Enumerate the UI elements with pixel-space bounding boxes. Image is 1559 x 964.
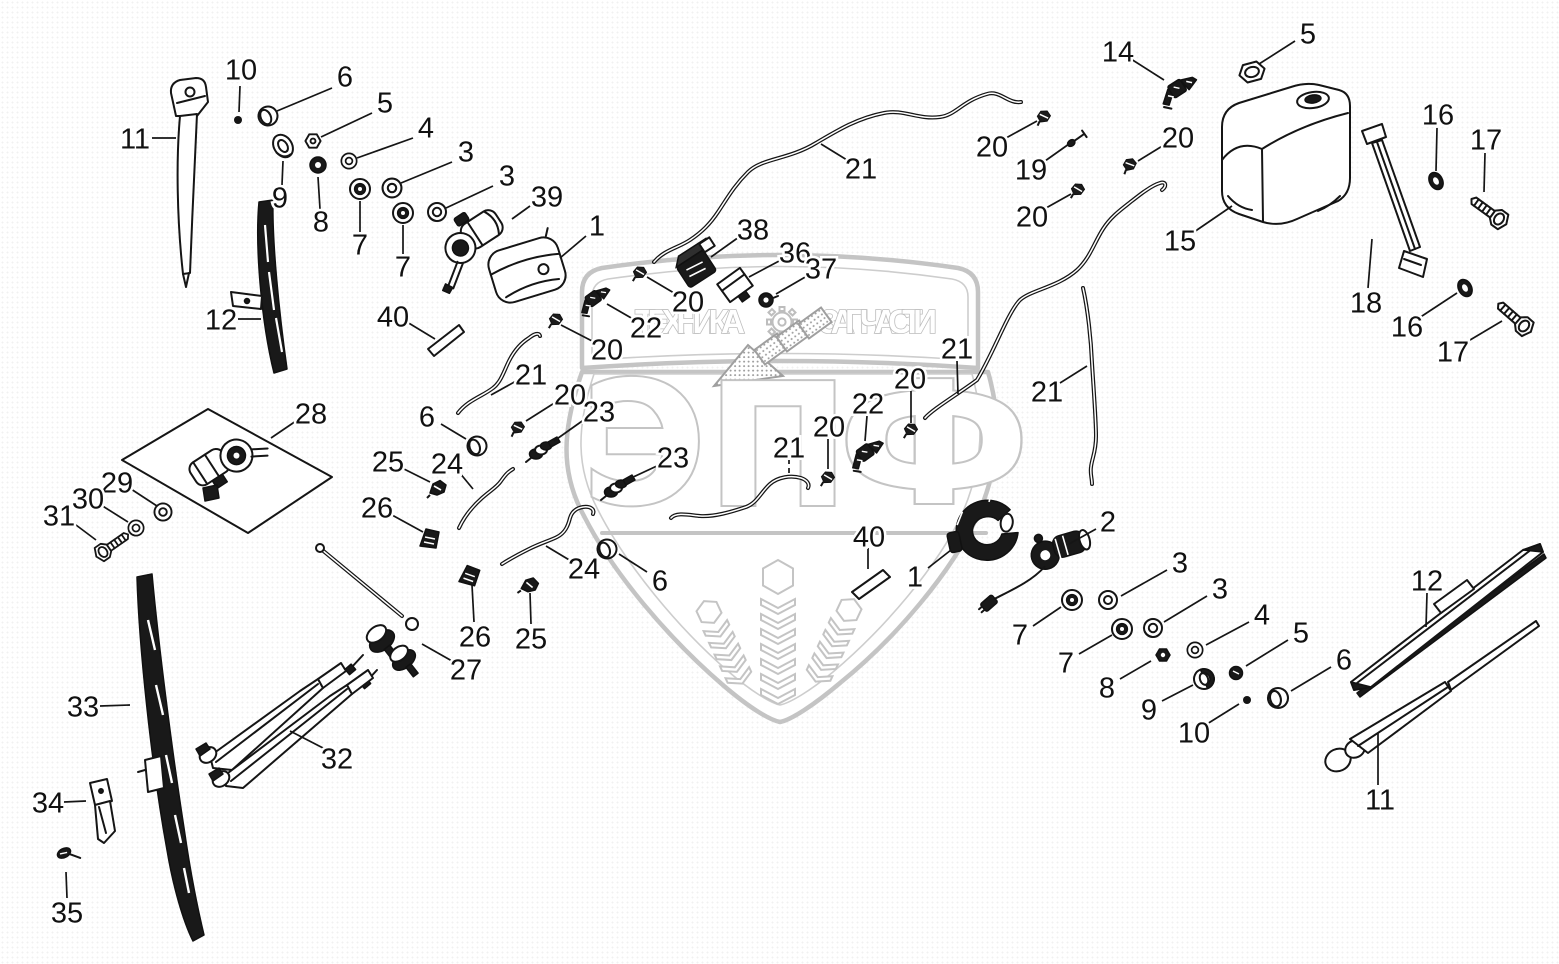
part-3-washer bbox=[383, 179, 402, 198]
callout-label-23: 23 bbox=[583, 397, 615, 429]
callout-label-19: 19 bbox=[1015, 155, 1047, 187]
callout-label-5: 5 bbox=[377, 88, 393, 120]
part-20-clip bbox=[1119, 156, 1138, 174]
callout-label-21: 21 bbox=[773, 433, 805, 465]
part-9-cap bbox=[269, 131, 297, 161]
callout-label-20: 20 bbox=[672, 287, 704, 319]
leader-line-21 bbox=[1060, 366, 1087, 383]
part-20-clip bbox=[1068, 182, 1086, 198]
callout-label-20: 20 bbox=[894, 364, 926, 396]
leader-line-31 bbox=[72, 522, 96, 540]
part-33-wiper-blade-large bbox=[137, 574, 204, 941]
callout-label-8: 8 bbox=[313, 207, 329, 239]
part-16-washer bbox=[1426, 170, 1446, 192]
callout-label-21: 21 bbox=[1031, 377, 1063, 409]
leader-line-3 bbox=[1164, 596, 1207, 622]
callout-label-11: 11 bbox=[1365, 785, 1395, 817]
leader-line-35 bbox=[66, 872, 67, 898]
callout-label-1: 1 bbox=[589, 211, 605, 243]
part-31-bolt bbox=[92, 528, 133, 563]
callout-label-8: 8 bbox=[1099, 673, 1115, 705]
leader-line-20 bbox=[1138, 145, 1164, 161]
part-1-motor-housing bbox=[483, 227, 570, 306]
callout-label-28: 28 bbox=[295, 399, 327, 431]
callout-label-11: 11 bbox=[120, 124, 150, 156]
part-34-adapter bbox=[90, 779, 115, 843]
callout-label-31: 31 bbox=[43, 501, 75, 533]
callout-label-26: 26 bbox=[361, 493, 393, 525]
leader-line-7 bbox=[1033, 607, 1061, 626]
callout-label-16: 16 bbox=[1391, 312, 1423, 344]
leader-line-19 bbox=[1045, 144, 1069, 161]
part-7-washer bbox=[350, 179, 370, 199]
callout-label-9: 9 bbox=[272, 183, 288, 215]
callout-label-22: 22 bbox=[630, 313, 662, 345]
part-5-nut bbox=[305, 134, 320, 147]
callout-label-3: 3 bbox=[1212, 574, 1228, 606]
callout-label-37: 37 bbox=[805, 254, 837, 286]
part-18-bracket bbox=[1362, 124, 1427, 277]
leader-line-8 bbox=[318, 177, 320, 209]
leader-line-6 bbox=[277, 88, 332, 111]
part-8-nut bbox=[310, 157, 326, 173]
part-6-grommet bbox=[255, 103, 280, 128]
callout-label-20: 20 bbox=[591, 335, 623, 367]
callout-label-39: 39 bbox=[531, 182, 563, 214]
leader-line-5 bbox=[1259, 41, 1295, 64]
part-4-washer bbox=[1187, 642, 1202, 657]
leader-line-20 bbox=[1006, 121, 1037, 138]
callout-label-27: 27 bbox=[450, 655, 482, 687]
callout-label-9: 9 bbox=[1141, 695, 1157, 727]
callout-label-18: 18 bbox=[1350, 288, 1382, 320]
callout-label-35: 35 bbox=[51, 898, 83, 930]
leader-line-3 bbox=[1121, 570, 1167, 596]
part-6-grommet bbox=[1266, 686, 1290, 710]
leader-line-20 bbox=[526, 402, 556, 421]
part-27-linkage bbox=[316, 544, 426, 689]
callout-label-30: 30 bbox=[72, 484, 104, 516]
callout-label-40: 40 bbox=[377, 302, 409, 334]
part-29-washer bbox=[154, 503, 171, 520]
callout-label-5: 5 bbox=[1300, 19, 1316, 51]
callout-label-20: 20 bbox=[976, 132, 1008, 164]
callout-label-24: 24 bbox=[568, 554, 600, 586]
callout-label-1: 1 bbox=[907, 562, 923, 594]
leader-line-16 bbox=[1436, 128, 1437, 171]
callout-label-6: 6 bbox=[652, 566, 668, 598]
part-11-wiper-arm bbox=[171, 78, 208, 287]
leader-line-12 bbox=[1426, 593, 1427, 627]
leader-line-5 bbox=[321, 113, 372, 137]
callout-label-34: 34 bbox=[32, 788, 64, 820]
callout-label-4: 4 bbox=[418, 113, 434, 145]
callout-label-33: 33 bbox=[67, 692, 99, 724]
callout-label-7: 7 bbox=[352, 230, 368, 262]
part-24-tube bbox=[459, 469, 513, 528]
callout-label-40: 40 bbox=[853, 522, 885, 554]
callout-label-21: 21 bbox=[941, 334, 973, 366]
part-30-washer bbox=[128, 520, 143, 535]
part-7-washer bbox=[1062, 590, 1082, 610]
part-20-clip bbox=[1033, 109, 1052, 126]
part-10-stop bbox=[234, 116, 242, 124]
callout-label-4: 4 bbox=[1254, 600, 1270, 632]
leader-line-26 bbox=[472, 585, 474, 622]
leader-line-9 bbox=[1162, 685, 1193, 701]
callout-label-6: 6 bbox=[337, 62, 353, 94]
part-25-clamp bbox=[517, 576, 539, 597]
part-12-wiper-blade bbox=[1351, 544, 1546, 697]
callout-label-7: 7 bbox=[1058, 648, 1074, 680]
part-3-spacer bbox=[1144, 619, 1162, 637]
leader-line-27 bbox=[422, 644, 452, 661]
leader-line-7 bbox=[1079, 635, 1112, 654]
callout-label-24: 24 bbox=[431, 449, 463, 481]
callout-label-10: 10 bbox=[1178, 718, 1210, 750]
callout-label-12: 12 bbox=[205, 305, 237, 337]
leader-line-30 bbox=[101, 505, 128, 522]
leader-line-4 bbox=[357, 138, 413, 158]
leader-line-21 bbox=[821, 144, 847, 160]
part-7-washer bbox=[1112, 619, 1132, 639]
diagram-page: ТЕХНИКА ЗАПЧАСТИ Э П Ф bbox=[0, 0, 1559, 964]
callout-label-15: 15 bbox=[1164, 226, 1196, 258]
callout-label-17: 17 bbox=[1437, 337, 1469, 369]
leader-line-33 bbox=[100, 705, 130, 706]
callout-label-32: 32 bbox=[321, 744, 353, 776]
callout-label-3: 3 bbox=[458, 137, 474, 169]
leader-line-34 bbox=[64, 801, 86, 802]
callout-label-23: 23 bbox=[657, 443, 689, 475]
callout-label-29: 29 bbox=[101, 468, 133, 500]
callout-label-3: 3 bbox=[1172, 548, 1188, 580]
leader-line-20 bbox=[1046, 194, 1071, 208]
part-35-clip bbox=[56, 843, 81, 866]
leader-line-26 bbox=[392, 515, 423, 532]
leader-line-1 bbox=[560, 236, 586, 258]
watermark-text-right: ЗАПЧАСТИ bbox=[819, 303, 937, 340]
callout-label-16: 16 bbox=[1422, 100, 1454, 132]
part-4-washer bbox=[341, 153, 356, 168]
leader-line-16 bbox=[1419, 293, 1457, 318]
leader-line-39 bbox=[512, 206, 530, 219]
leader-line-8 bbox=[1120, 661, 1151, 679]
callout-label-3: 3 bbox=[499, 161, 515, 193]
callout-label-6: 6 bbox=[419, 402, 435, 434]
part-25-clamp bbox=[427, 481, 446, 499]
callout-label-6: 6 bbox=[1336, 645, 1352, 677]
callout-label-7: 7 bbox=[1012, 620, 1028, 652]
part-20-clip bbox=[507, 420, 526, 437]
leader-line-18 bbox=[1368, 239, 1372, 288]
callout-label-20: 20 bbox=[813, 412, 845, 444]
part-17-bolt bbox=[1492, 297, 1536, 339]
callout-label-22: 22 bbox=[852, 389, 884, 421]
part-21-hose bbox=[1083, 288, 1096, 484]
callout-label-21: 21 bbox=[515, 360, 547, 392]
callout-label-7: 7 bbox=[395, 252, 411, 284]
callout-label-21: 21 bbox=[845, 154, 877, 186]
leader-line-10 bbox=[239, 86, 240, 112]
leader-line-3 bbox=[401, 162, 452, 183]
leader-line-15 bbox=[1194, 206, 1232, 232]
part-12-wiper-blade bbox=[231, 200, 287, 373]
callout-label-17: 17 bbox=[1470, 125, 1502, 157]
part-10-stop bbox=[1243, 696, 1251, 704]
wiper-washer-parts-diagram: ТЕХНИКА ЗАПЧАСТИ Э П Ф bbox=[0, 0, 1559, 964]
part-14-check-valve bbox=[1156, 71, 1202, 111]
part-16-washer bbox=[1455, 277, 1475, 299]
leader-line-28 bbox=[271, 421, 296, 438]
part-15-washer-tank bbox=[1222, 84, 1350, 224]
leader-line-6 bbox=[441, 424, 466, 439]
leader-line-40 bbox=[407, 322, 435, 339]
callout-label-12: 12 bbox=[1411, 566, 1443, 598]
part-26-clamp bbox=[459, 565, 480, 586]
part-17-bolt bbox=[1466, 192, 1511, 232]
part-6-grommet bbox=[465, 434, 489, 458]
callout-label-20: 20 bbox=[554, 380, 586, 412]
leader-line-14 bbox=[1131, 59, 1164, 80]
leader-line-9 bbox=[282, 161, 283, 185]
part-40-plate bbox=[428, 325, 464, 356]
part-3-washer bbox=[1099, 591, 1117, 609]
leader-line-5 bbox=[1246, 640, 1288, 666]
callout-label-5: 5 bbox=[1293, 618, 1309, 650]
leader-line-17 bbox=[1484, 153, 1485, 192]
callout-label-14: 14 bbox=[1102, 37, 1134, 69]
callout-label-25: 25 bbox=[372, 447, 404, 479]
part-3-spacer bbox=[428, 203, 446, 221]
part-19-pin bbox=[1066, 131, 1087, 149]
part-5-nut bbox=[1230, 667, 1243, 680]
callout-label-20: 20 bbox=[1162, 123, 1194, 155]
part-9-cap bbox=[1191, 666, 1217, 692]
callout-label-26: 26 bbox=[459, 622, 491, 654]
leader-line-17 bbox=[1465, 321, 1502, 343]
callout-label-25: 25 bbox=[515, 624, 547, 656]
part-5-tank-cap bbox=[1237, 60, 1267, 84]
leader-line-3 bbox=[446, 186, 493, 208]
leader-line-10 bbox=[1207, 704, 1239, 724]
leader-line-6 bbox=[1291, 667, 1331, 691]
callout-label-38: 38 bbox=[737, 215, 769, 247]
callout-label-20: 20 bbox=[1016, 202, 1048, 234]
leader-line-21 bbox=[957, 361, 958, 394]
leader-line-25 bbox=[402, 468, 430, 482]
leader-line-4 bbox=[1206, 622, 1249, 645]
leader-line-29 bbox=[131, 489, 157, 506]
leader-line-25 bbox=[530, 593, 531, 624]
part-8-nut bbox=[1156, 649, 1170, 661]
callout-label-10: 10 bbox=[225, 55, 257, 87]
callout-label-2: 2 bbox=[1100, 507, 1116, 539]
part-7-washer bbox=[393, 203, 413, 223]
